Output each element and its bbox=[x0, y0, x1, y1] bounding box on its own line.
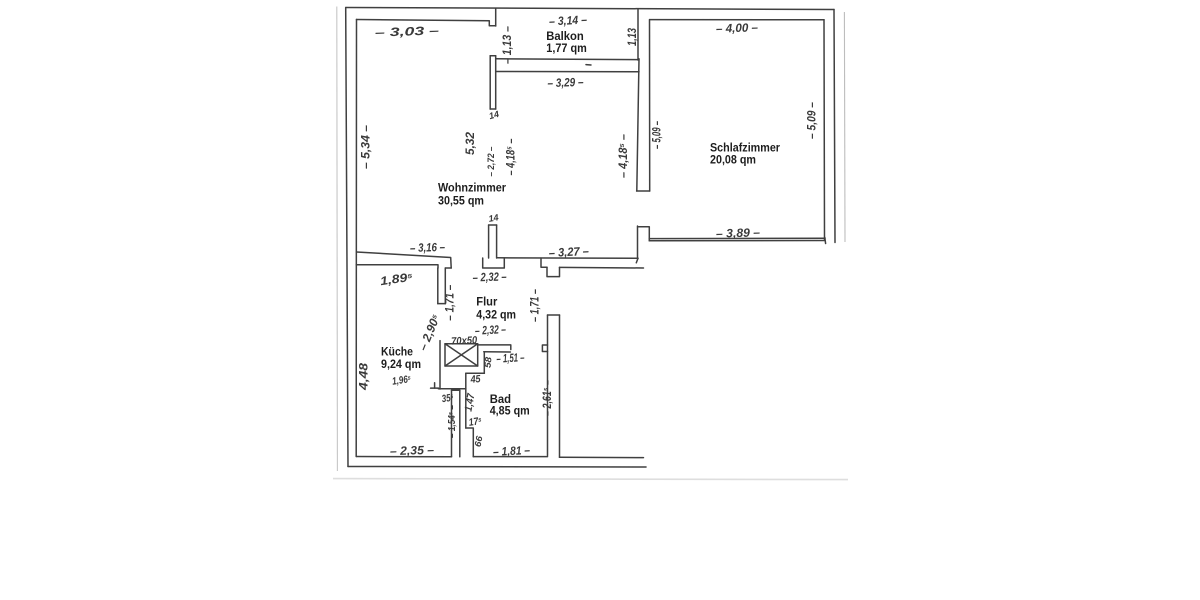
svg-text:– 1,13 –: – 1,13 – bbox=[500, 26, 514, 64]
svg-text:– 1,81 –: – 1,81 – bbox=[493, 443, 531, 459]
svg-text:30,55 qm: 30,55 qm bbox=[438, 194, 484, 208]
svg-text:45: 45 bbox=[469, 373, 481, 386]
svg-text:5,32: 5,32 bbox=[463, 132, 477, 155]
svg-text:– 1,71 –: – 1,71 – bbox=[443, 284, 457, 320]
svg-text:– 2,32 –: – 2,32 – bbox=[472, 269, 507, 284]
svg-text:– 3,29 –: – 3,29 – bbox=[547, 75, 584, 90]
svg-text:– 2,72 –: – 2,72 – bbox=[486, 147, 496, 177]
svg-text:– 2,61⁵ –: – 2,61⁵ – bbox=[540, 380, 554, 416]
svg-text:70x50: 70x50 bbox=[451, 334, 478, 347]
svg-text:– 1,71 –: – 1,71 – bbox=[528, 289, 542, 322]
svg-text:4,85 qm: 4,85 qm bbox=[490, 404, 530, 418]
svg-text:– 5,09 –: – 5,09 – bbox=[805, 102, 819, 139]
svg-text:4,48: 4,48 bbox=[357, 363, 371, 392]
svg-text:– 3,16 –: – 3,16 – bbox=[410, 240, 446, 255]
svg-text:17⁵: 17⁵ bbox=[468, 415, 483, 429]
svg-text:1,77 qm: 1,77 qm bbox=[546, 41, 587, 55]
svg-text:– 3,03 –: – 3,03 – bbox=[375, 23, 440, 39]
svg-text:35⁵: 35⁵ bbox=[441, 392, 455, 406]
svg-text:– 3,27 –: – 3,27 – bbox=[548, 244, 589, 260]
svg-text:14: 14 bbox=[488, 212, 500, 224]
svg-text:– 3,89 –: – 3,89 – bbox=[716, 225, 761, 241]
svg-text:– 2,35 –: – 2,35 – bbox=[390, 443, 435, 459]
svg-text:– 4,00 –: – 4,00 – bbox=[716, 20, 759, 35]
svg-text:– 5,34 –: – 5,34 – bbox=[359, 125, 373, 169]
svg-text:– 5,09 –: – 5,09 – bbox=[650, 121, 664, 149]
svg-text:Flur: Flur bbox=[476, 295, 497, 309]
svg-text:58: 58 bbox=[483, 357, 494, 369]
svg-text:– 4,18⁵ –: – 4,18⁵ – bbox=[504, 138, 518, 175]
svg-text:– 1,51 –: – 1,51 – bbox=[496, 350, 525, 365]
svg-text:– 2,32 –: – 2,32 – bbox=[475, 322, 507, 338]
svg-text:9,24 qm: 9,24 qm bbox=[381, 357, 421, 371]
svg-text:20,08 qm: 20,08 qm bbox=[710, 153, 756, 167]
svg-text:– 3,14 –: – 3,14 – bbox=[549, 13, 588, 29]
svg-text:1,13: 1,13 bbox=[625, 28, 639, 46]
svg-text:– 1,54⁵ –: – 1,54⁵ – bbox=[446, 405, 458, 438]
svg-text:Wohnzimmer: Wohnzimmer bbox=[438, 181, 506, 195]
svg-text:– 4,18⁵ –: – 4,18⁵ – bbox=[616, 134, 630, 178]
svg-text:4,32 qm: 4,32 qm bbox=[476, 308, 516, 322]
